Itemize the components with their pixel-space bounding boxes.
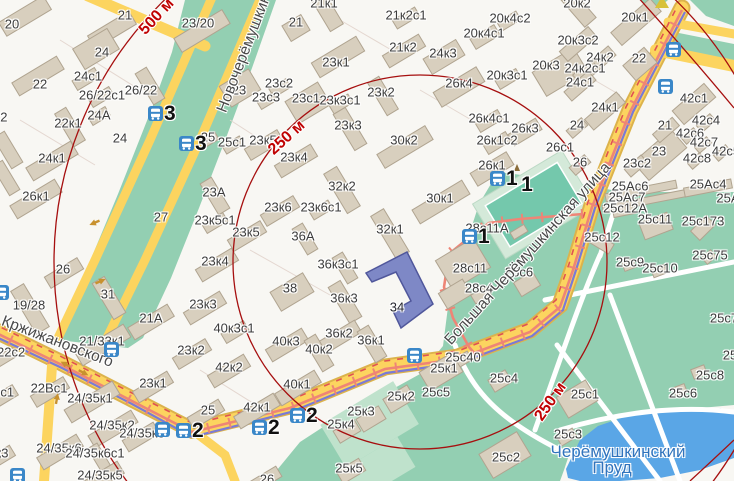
building: [377, 126, 433, 169]
building: [55, 107, 86, 146]
building: [26, 141, 78, 181]
building: [292, 223, 318, 255]
bus-stop-icon[interactable]: 1: [462, 229, 477, 244]
bus-stop-icon[interactable]: 3: [148, 106, 163, 121]
stop-number: 3: [195, 132, 207, 156]
building: [88, 107, 110, 126]
building: [687, 153, 704, 170]
building: [333, 107, 367, 150]
stop-number: 3: [164, 102, 176, 126]
bus-stop-icon[interactable]: [10, 468, 25, 481]
building: [495, 69, 521, 90]
building: [265, 328, 308, 362]
building: [244, 130, 283, 161]
building: [260, 196, 299, 227]
building: [44, 258, 83, 289]
map-geometry: [0, 0, 734, 481]
building: [433, 67, 485, 107]
building: [681, 128, 698, 145]
stop-number: 2: [192, 419, 204, 443]
bus-stop-icon[interactable]: 2: [252, 420, 267, 435]
building: [0, 348, 17, 367]
building: [611, 0, 661, 45]
bus-stop-icon[interactable]: [155, 422, 170, 437]
building: [694, 137, 711, 154]
bus-stop-icon[interactable]: [104, 342, 119, 357]
map-canvas[interactable]: 202123/202424с126/22с126/222222к124А2425…: [0, 0, 734, 481]
building: [12, 56, 64, 96]
building: [423, 39, 465, 74]
building: [318, 320, 361, 354]
building: [270, 273, 314, 311]
building: [483, 132, 511, 155]
building: [328, 280, 362, 323]
building: [133, 371, 174, 403]
building: [285, 82, 331, 124]
building: [357, 325, 387, 363]
stop-number: 2: [268, 416, 280, 440]
building: [0, 445, 16, 467]
building: [207, 354, 250, 388]
building: [0, 385, 18, 408]
bus-stop-icon[interactable]: 2: [290, 408, 305, 423]
building: [497, 11, 521, 31]
stop-number: 1: [478, 225, 490, 249]
building: [11, 284, 50, 335]
building: [195, 248, 238, 282]
stop-number: 2: [306, 404, 318, 428]
building: [172, 339, 211, 370]
building: [713, 145, 730, 162]
building-34-highlighted[interactable]: [366, 252, 433, 328]
bus-stop-icon[interactable]: [666, 42, 681, 57]
building: [371, 209, 410, 260]
building: [392, 7, 419, 29]
building: [221, 321, 249, 344]
building: [200, 177, 230, 215]
building: [470, 25, 500, 50]
building: [72, 68, 100, 91]
building: [202, 213, 228, 234]
bus-stop-icon[interactable]: [407, 348, 422, 363]
building: [307, 0, 344, 32]
building: [475, 110, 503, 133]
building: [696, 114, 715, 133]
building: [508, 118, 542, 146]
building: [274, 144, 317, 178]
bus-stop-icon[interactable]: [658, 79, 673, 94]
bus-stop-icon[interactable]: [0, 285, 9, 300]
building: [311, 36, 364, 77]
bus-stop-icon[interactable]: 2: [176, 423, 191, 438]
building: [88, 87, 114, 108]
bus-stop-icon[interactable]: 1: [490, 171, 505, 186]
building: [332, 252, 358, 284]
building: [309, 200, 333, 220]
stop-number: 1: [506, 167, 518, 191]
building: [0, 0, 51, 36]
building: [183, 291, 226, 325]
building: [282, 15, 310, 42]
building: [382, 34, 425, 68]
building: [566, 118, 588, 139]
building: [560, 0, 596, 27]
bus-stop-icon[interactable]: 3: [179, 136, 194, 151]
warning-icon: [655, 0, 669, 8]
building: [250, 466, 282, 481]
building: [368, 76, 399, 115]
building: [257, 93, 277, 110]
oneway-arrow-icon: [88, 218, 101, 228]
building: [412, 180, 470, 224]
